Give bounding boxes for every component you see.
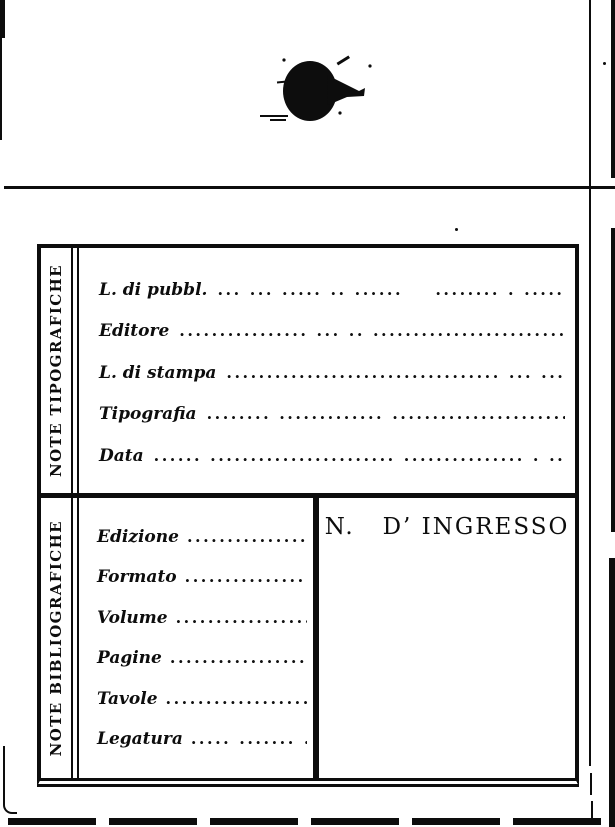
field-label: L. di pubbl.: [99, 280, 207, 300]
horizontal-rule: [4, 186, 615, 189]
double-rule-vertical: [71, 248, 79, 493]
field-row-pagine: Pagine .....................: [97, 648, 307, 668]
scan-edge-right: [611, 0, 615, 178]
field-row-l-di-pubbl: L. di pubbl. ... ... ..... .. ...... ...…: [99, 280, 565, 300]
side-label-column: NOTE BIBLIOGRAFICHE: [41, 498, 71, 778]
dotted-line: ......................: [166, 689, 307, 708]
scan-edge-right: [609, 558, 615, 827]
page-fold-line-dash: [590, 773, 592, 795]
double-rule-vertical: [71, 498, 79, 778]
field-label: Legatura: [97, 729, 183, 749]
field-row-legatura: Legatura ..... ....... ......: [97, 729, 307, 749]
scanned-catalog-card-page: NOTE TIPOGRAFICHE L. di pubbl. ... ... .…: [0, 0, 615, 827]
ingresso-label: N. D’ INGRESSO: [325, 514, 570, 540]
field-row-editore: Editore ................ ... .. ........…: [99, 321, 565, 341]
dotted-line: ........ ............. .................…: [207, 404, 565, 423]
field-label: Pagine: [97, 648, 162, 668]
field-label: Tavole: [97, 689, 158, 709]
ingresso-box: N. D’ INGRESSO: [319, 498, 575, 778]
field-row-l-di-stampa: L. di stampa ...........................…: [99, 363, 565, 383]
scan-edge-left-top: [0, 0, 5, 38]
catalog-card: NOTE TIPOGRAFICHE L. di pubbl. ... ... .…: [37, 244, 579, 787]
dotted-line: ................ ... .. ................…: [179, 321, 565, 340]
bibliografiche-fields: Edizione .................... Formato ..…: [79, 498, 313, 778]
dotted-line: ......................: [176, 608, 307, 627]
field-row-edizione: Edizione ....................: [97, 527, 307, 547]
field-row-tipografia: Tipografia ........ ............. ......…: [99, 404, 565, 424]
dotted-line: .....................: [185, 567, 307, 586]
dotted-line: ...... ....................... .........…: [154, 446, 565, 465]
speck: [455, 228, 458, 231]
field-label: L. di stampa: [99, 363, 216, 383]
scan-edge-left: [0, 38, 2, 140]
field-label: Formato: [97, 567, 177, 587]
dotted-line: .................................. ... .…: [226, 363, 565, 382]
field-row-tavole: Tavole ......................: [97, 689, 307, 709]
tipografiche-fields: L. di pubbl. ... ... ..... .. ...... ...…: [79, 248, 575, 493]
dotted-line: ....................: [187, 527, 307, 546]
field-label: Data: [99, 446, 144, 466]
page-fold-line-dash: [591, 801, 593, 818]
ink-blot-stamp: [253, 48, 387, 140]
field-row-data: Data ...... ....................... ....…: [99, 446, 565, 466]
side-label-tipografiche: NOTE TIPOGRAFICHE: [47, 264, 65, 477]
speck: [603, 62, 606, 65]
dotted-line: ... ... ..... .. ...... ........ . .....…: [217, 280, 565, 299]
section-note-bibliografiche: NOTE BIBLIOGRAFICHE Edizione ...........…: [41, 498, 575, 778]
field-label: Tipografia: [99, 404, 197, 424]
field-row-volume: Volume ......................: [97, 608, 307, 628]
field-label: Volume: [97, 608, 168, 628]
side-label-column: NOTE TIPOGRAFICHE: [41, 248, 71, 493]
scan-edge-right: [611, 228, 615, 532]
page-fold-line: [589, 0, 591, 766]
side-label-bibliografiche: NOTE BIBLIOGRAFICHE: [47, 520, 65, 756]
field-label: Editore: [99, 321, 169, 341]
scan-corner-bottom-left: [3, 746, 17, 814]
scan-edge-bottom: [8, 818, 608, 825]
field-label: Edizione: [97, 527, 179, 547]
dotted-line: .....................: [170, 648, 307, 667]
bibliografiche-content: Edizione .................... Formato ..…: [79, 498, 575, 778]
field-row-formato: Formato .....................: [97, 567, 307, 587]
dotted-line: ..... ....... ......: [191, 729, 307, 748]
section-note-tipografiche: NOTE TIPOGRAFICHE L. di pubbl. ... ... .…: [41, 248, 575, 493]
